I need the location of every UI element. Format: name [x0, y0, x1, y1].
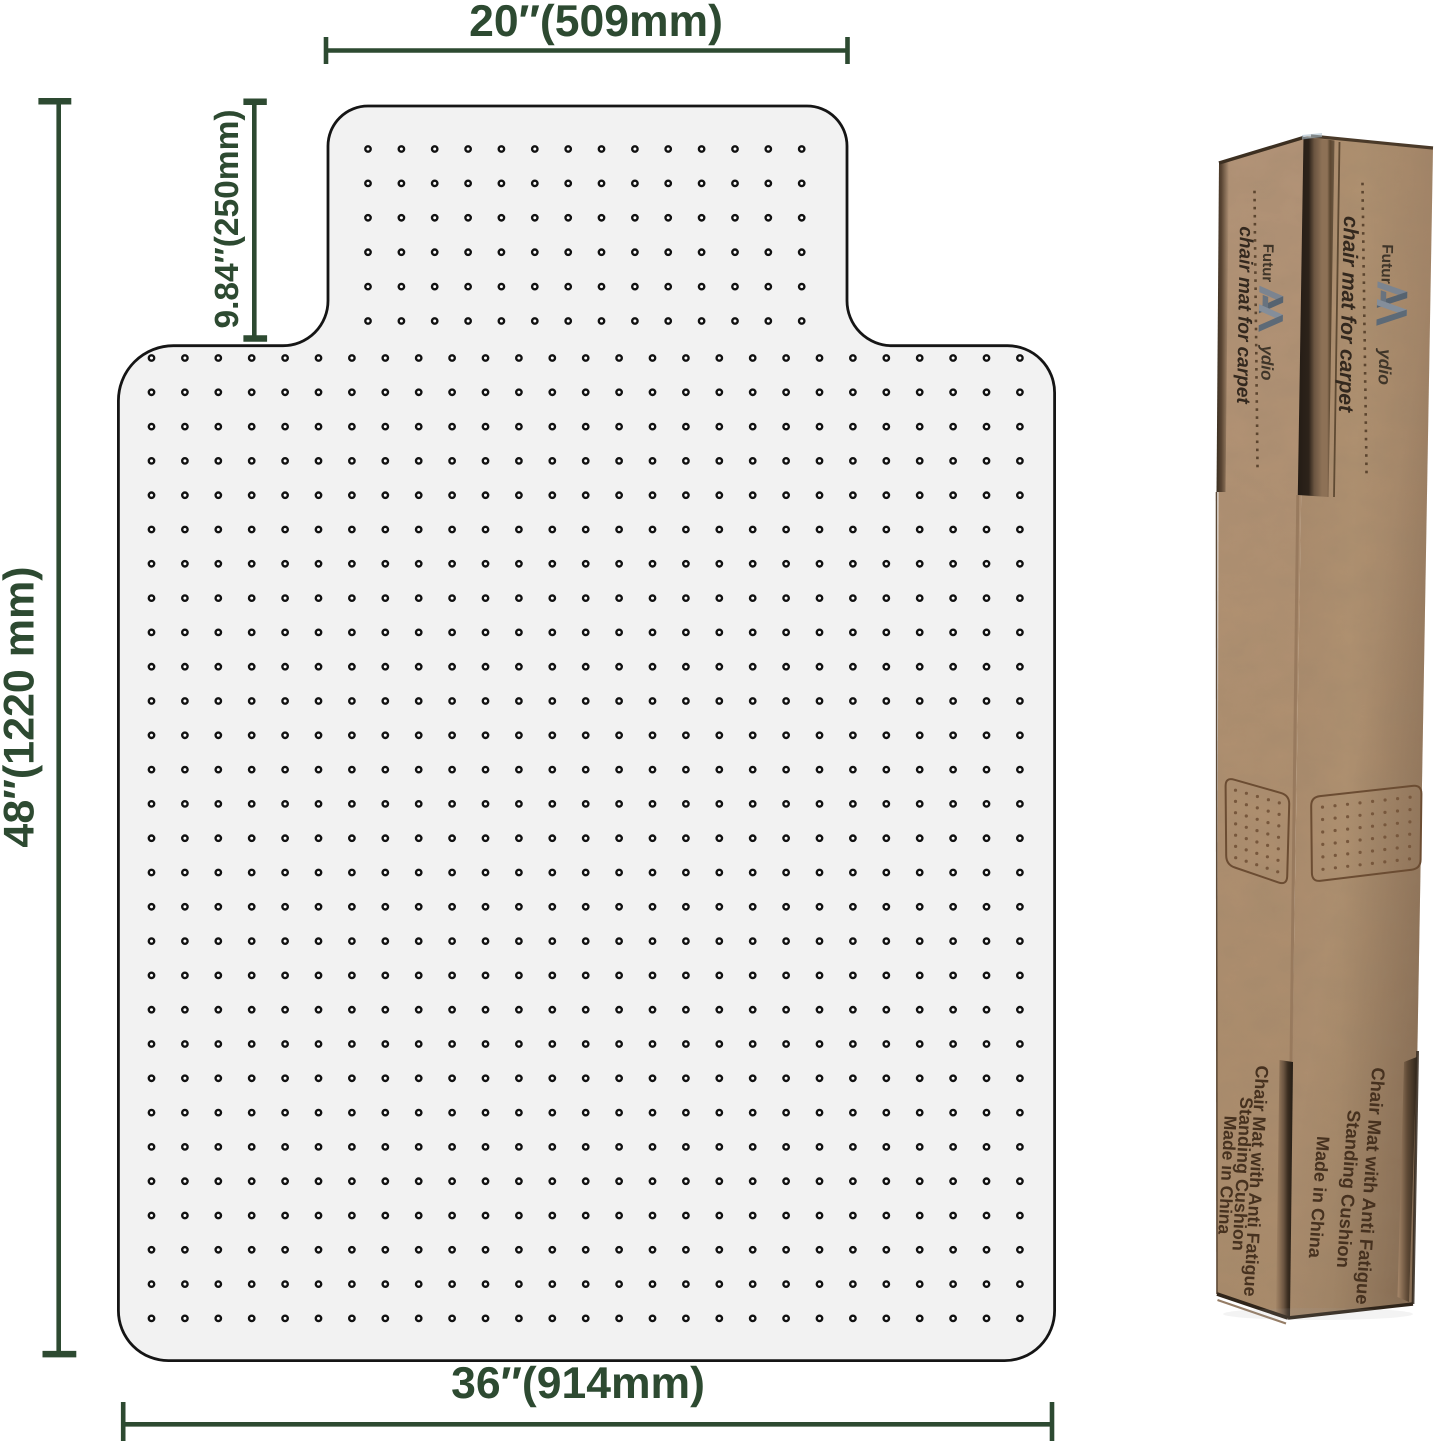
svg-text:36″(914mm): 36″(914mm): [451, 1359, 705, 1408]
svg-text:Futur: Futur: [1259, 244, 1277, 283]
svg-text:48″(1220 mm): 48″(1220 mm): [0, 566, 44, 847]
svg-text:chair mat for carpet: chair mat for carpet: [1232, 226, 1256, 404]
svg-text:Futur: Futur: [1377, 244, 1395, 284]
svg-text:ydio: ydio: [1257, 344, 1277, 380]
svg-text:20″(509mm): 20″(509mm): [469, 0, 723, 46]
svg-text:9.84″(250mm): 9.84″(250mm): [209, 109, 246, 328]
svg-text:ydio: ydio: [1375, 348, 1396, 386]
